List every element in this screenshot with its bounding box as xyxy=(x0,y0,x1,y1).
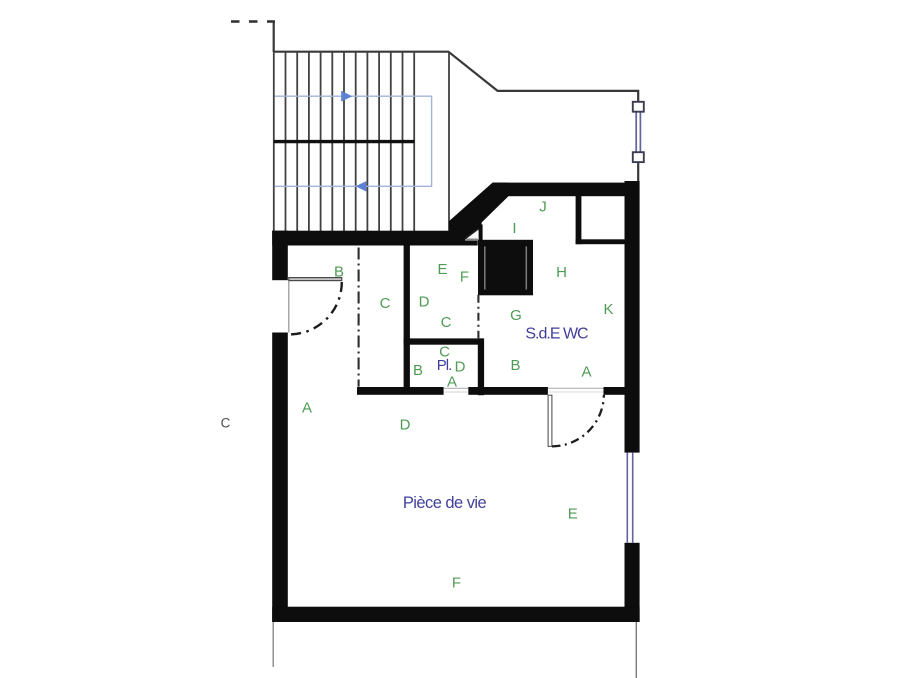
svg-text:B: B xyxy=(334,264,344,281)
svg-text:K: K xyxy=(603,301,613,318)
svg-text:D: D xyxy=(419,294,430,311)
svg-text:A: A xyxy=(302,400,312,417)
svg-text:Pl.: Pl. xyxy=(437,357,452,374)
svg-text:C: C xyxy=(441,314,452,331)
svg-text:E: E xyxy=(568,506,578,523)
svg-text:S.d.E WC: S.d.E WC xyxy=(525,326,588,343)
svg-text:I: I xyxy=(512,220,516,237)
svg-text:J: J xyxy=(539,199,547,216)
svg-text:F: F xyxy=(452,575,461,592)
svg-text:H: H xyxy=(556,264,567,281)
svg-text:G: G xyxy=(510,307,522,324)
svg-text:C: C xyxy=(221,416,231,431)
svg-text:F: F xyxy=(460,269,469,286)
svg-text:Pièce de vie: Pièce de vie xyxy=(403,494,487,512)
svg-text:B: B xyxy=(510,357,520,374)
svg-text:C: C xyxy=(380,295,391,312)
svg-text:A: A xyxy=(447,374,457,391)
svg-text:D: D xyxy=(400,417,411,434)
svg-text:E: E xyxy=(437,261,447,278)
svg-text:A: A xyxy=(581,364,591,381)
svg-text:B: B xyxy=(413,362,423,379)
